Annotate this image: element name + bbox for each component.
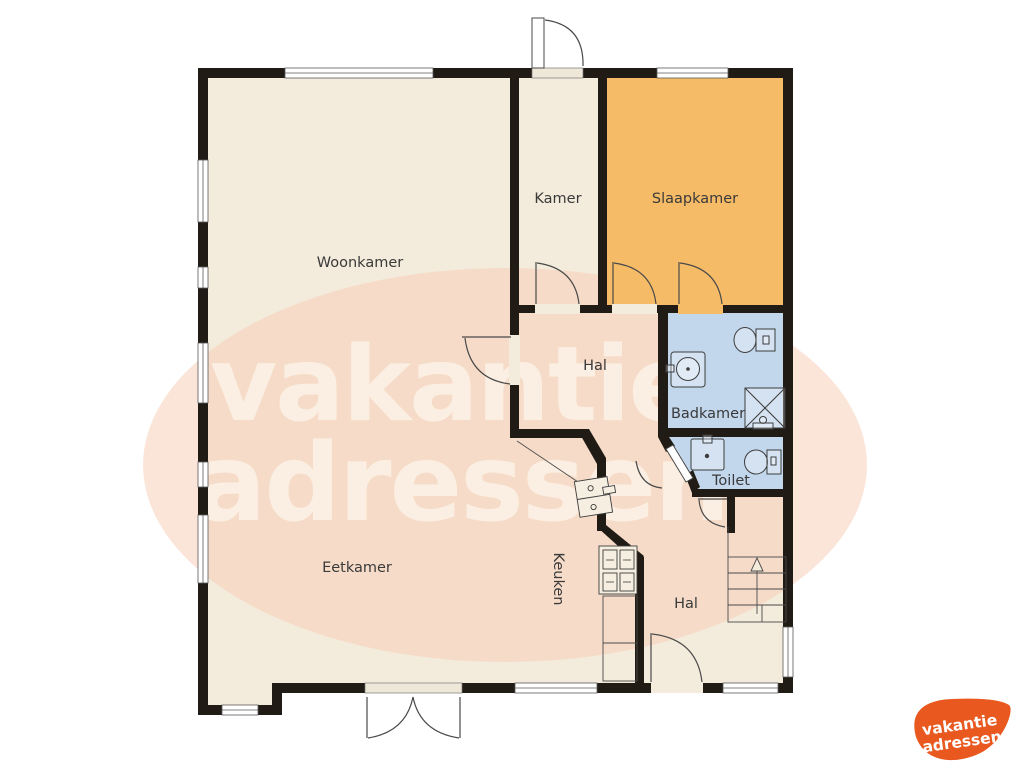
label-badkamer: Badkamer [671, 406, 745, 422]
label-kamer: Kamer [534, 191, 581, 207]
stove-icon [599, 546, 637, 594]
front-door [532, 18, 583, 68]
label-hal2: Hal [674, 596, 698, 612]
label-eetkamer: Eetkamer [322, 560, 392, 576]
brand-logo: vakantie adressen [914, 699, 1010, 760]
toilet-wc-icon [745, 450, 782, 474]
toilet-sink-icon [691, 435, 724, 470]
double-door [367, 697, 460, 738]
label-slaapkamer: Slaapkamer [652, 191, 738, 207]
label-toilet: Toilet [711, 473, 750, 489]
label-keuken: Keuken [550, 553, 566, 606]
shower-icon [745, 388, 785, 429]
floorplan-page: vakantie adressen [0, 0, 1024, 768]
washbasin-icon [666, 352, 705, 387]
label-woonkamer: Woonkamer [317, 255, 403, 271]
label-hal: Hal [583, 358, 607, 374]
floorplan-canvas: vakantie adressen [0, 0, 1024, 768]
